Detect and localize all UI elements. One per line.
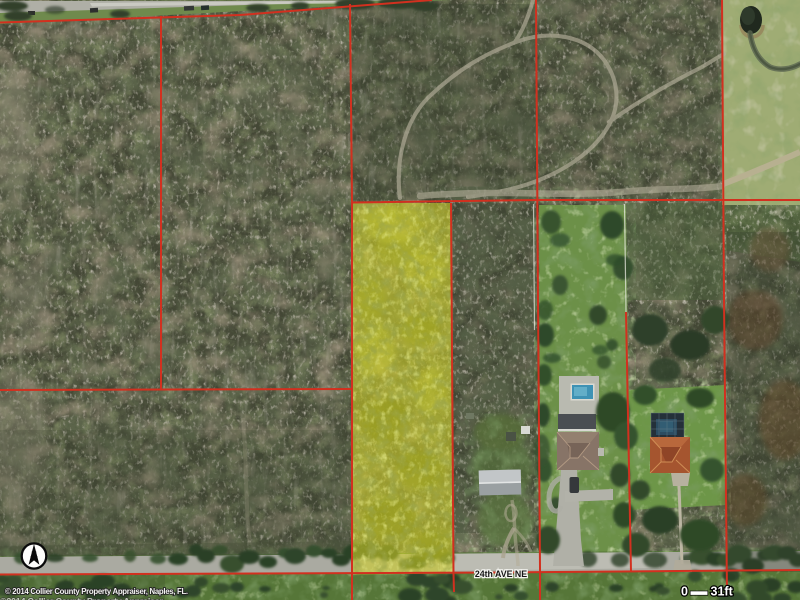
svg-text:31ft: 31ft <box>711 585 734 599</box>
svg-text:©2014 Collier County Property: ©2014 Collier County Property Appraiser <box>0 597 163 600</box>
svg-text:0: 0 <box>681 585 688 599</box>
svg-text:24th AVE NE: 24th AVE NE <box>475 569 527 579</box>
svg-text:© 2014 Collier County Property: © 2014 Collier County Property Appraiser… <box>5 587 188 596</box>
